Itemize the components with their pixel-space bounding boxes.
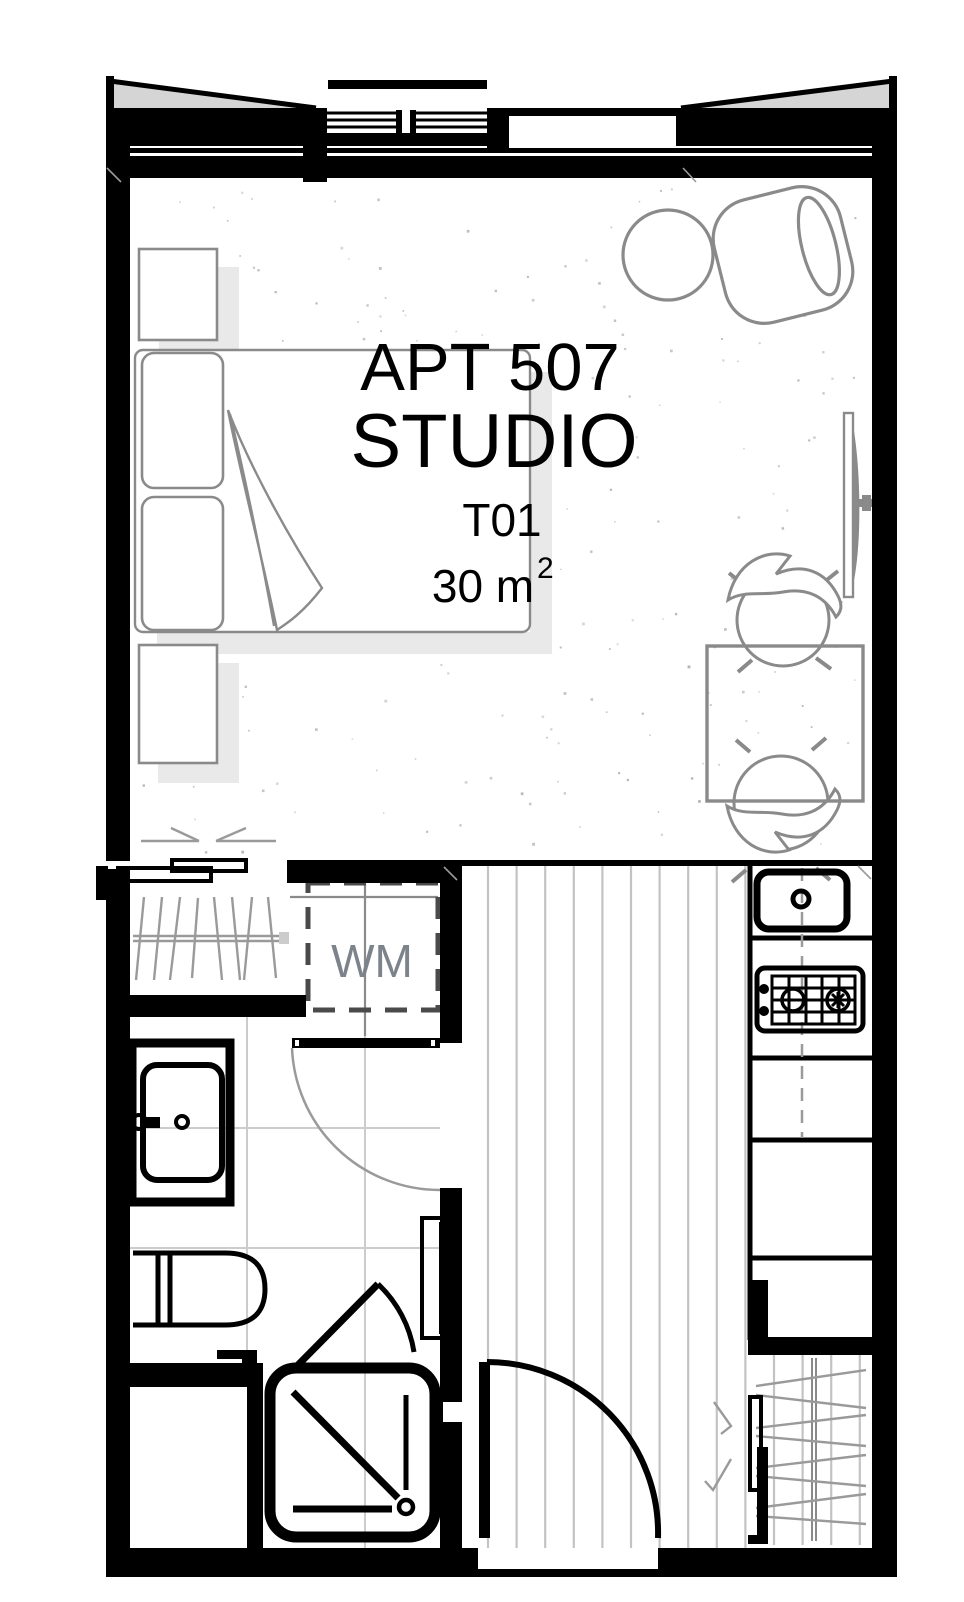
wardrobe-closet <box>133 897 289 980</box>
bathroom-sink <box>132 1043 230 1202</box>
tv <box>844 413 872 597</box>
pillow-bottom <box>142 497 223 630</box>
wall-bathroom-north <box>106 995 306 1017</box>
left-bay-window <box>106 76 327 146</box>
dining-table <box>707 646 863 801</box>
nightstand-bottom <box>139 645 217 763</box>
shower <box>270 1368 435 1537</box>
right-bay-window <box>676 76 897 146</box>
pillow-top <box>142 353 223 488</box>
service-shaft <box>106 1363 263 1577</box>
armchair <box>705 178 862 332</box>
kitchen-hob <box>757 968 863 1031</box>
wall-left <box>106 146 130 1548</box>
nightstand-top <box>139 249 217 340</box>
apartment-number: APT 507 <box>360 330 620 405</box>
unit-area-sup: 2 <box>537 552 554 585</box>
wall-right <box>872 146 897 1577</box>
window-centre <box>487 108 680 148</box>
window-pier <box>303 140 327 182</box>
window-left <box>325 80 487 146</box>
shower-drain-icon <box>399 1500 413 1514</box>
floorplan-canvas: WM <box>0 0 964 1602</box>
washing-machine: WM <box>290 883 438 1036</box>
apartment-type: STUDIO <box>350 399 637 484</box>
wm-label: WM <box>331 935 413 987</box>
storage-closet <box>705 1358 866 1544</box>
shower-door <box>295 1284 414 1368</box>
floorplan-apt-507: WM <box>0 0 964 1602</box>
side-table <box>623 210 713 300</box>
toilet <box>133 1253 265 1325</box>
closet-door <box>748 1397 768 1544</box>
wardrobe-sliding-doors <box>118 860 246 881</box>
kitchen-counter <box>748 865 872 1355</box>
unit-area: 30 m <box>432 560 534 612</box>
wardrobe-fold-symbol <box>141 828 276 841</box>
drain-icon <box>176 1116 188 1128</box>
wall-bathroom-east <box>440 860 462 1577</box>
unit-code: T01 <box>462 494 541 546</box>
